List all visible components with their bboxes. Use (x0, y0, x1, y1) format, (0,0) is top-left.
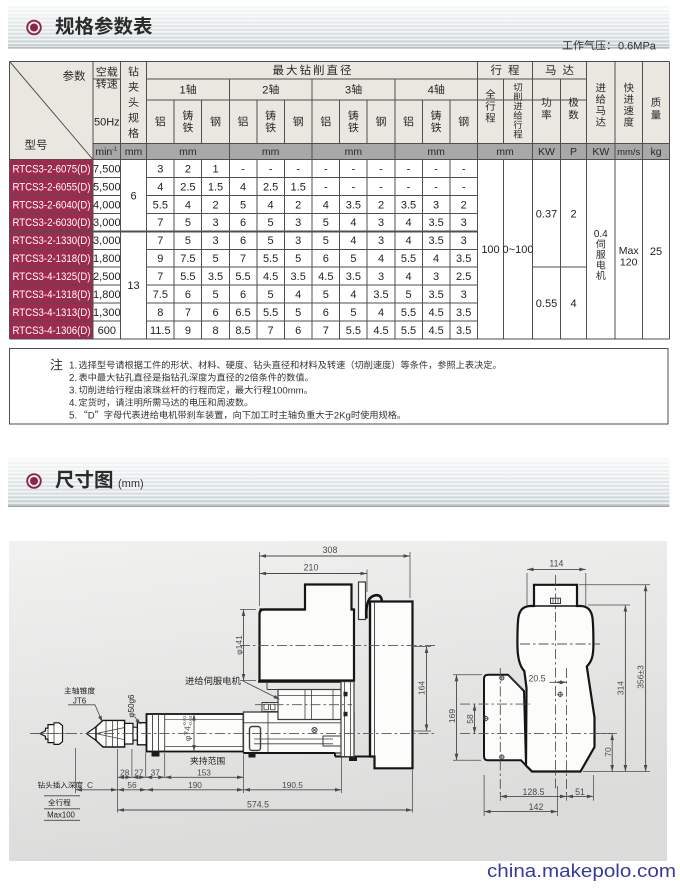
svg-text:5.5: 5.5 (346, 325, 361, 337)
svg-text:4,000: 4,000 (93, 199, 121, 211)
svg-text:Max100: Max100 (47, 811, 75, 820)
svg-text:356±3: 356±3 (636, 665, 646, 689)
svg-text:5: 5 (268, 235, 274, 247)
svg-text:169: 169 (447, 709, 457, 723)
svg-text:mm/s: mm/s (617, 147, 640, 158)
svg-text:51: 51 (575, 787, 585, 797)
svg-text:5: 5 (185, 235, 191, 247)
svg-text:JT6: JT6 (73, 696, 87, 705)
svg-text:8: 8 (157, 307, 163, 319)
svg-text:-: - (352, 181, 356, 193)
svg-text:-: - (379, 181, 383, 193)
svg-text:6: 6 (185, 289, 191, 301)
svg-text:3.5: 3.5 (428, 217, 443, 229)
svg-text:3: 3 (295, 235, 301, 247)
svg-text:8.5: 8.5 (235, 325, 250, 337)
svg-text:13: 13 (127, 280, 139, 292)
svg-text:3.5: 3.5 (456, 307, 471, 319)
svg-text:3.5: 3.5 (428, 235, 443, 247)
svg-text:120: 120 (620, 257, 638, 269)
svg-text:4.5: 4.5 (428, 307, 443, 319)
svg-text:2: 2 (244, 373, 249, 384)
svg-text:153: 153 (197, 768, 211, 778)
svg-text:142: 142 (529, 802, 544, 812)
svg-text:(mm): (mm) (118, 478, 144, 490)
svg-text:4: 4 (378, 307, 384, 319)
svg-text:Max: Max (619, 245, 640, 257)
svg-text:2: 2 (295, 199, 301, 211)
svg-text:RTCS3-4-1318(D): RTCS3-4-1318(D) (13, 289, 91, 301)
svg-text:3: 3 (157, 163, 163, 175)
svg-text:4: 4 (405, 217, 411, 229)
svg-text:RTCS3-4-1325(D): RTCS3-4-1325(D) (13, 271, 91, 283)
svg-text:6: 6 (323, 307, 329, 319)
svg-text:4: 4 (405, 271, 411, 283)
svg-text:37: 37 (151, 768, 161, 778)
svg-text:7: 7 (157, 217, 163, 229)
svg-text:5,500: 5,500 (93, 181, 121, 193)
svg-text:100: 100 (481, 244, 499, 256)
svg-text:1.5: 1.5 (291, 181, 306, 193)
svg-text:mm: mm (427, 146, 445, 158)
svg-text:314: 314 (615, 681, 625, 695)
svg-text:2.5: 2.5 (263, 181, 278, 193)
svg-text:114: 114 (549, 559, 563, 569)
svg-text:3.5: 3.5 (346, 199, 361, 211)
svg-text:5.5: 5.5 (401, 325, 416, 337)
svg-text:9: 9 (157, 253, 163, 265)
svg-text:RTCS3-2-6040(D): RTCS3-2-6040(D) (13, 199, 91, 211)
svg-text:3,000: 3,000 (93, 235, 121, 247)
svg-text:28: 28 (120, 768, 130, 778)
svg-text:0.4: 0.4 (594, 229, 608, 240)
svg-text:5: 5 (323, 289, 329, 301)
svg-text:china.makepolo.com: china.makepolo.com (487, 861, 676, 881)
svg-text:7: 7 (157, 271, 163, 283)
svg-text:3.5: 3.5 (208, 271, 223, 283)
svg-text:574.5: 574.5 (247, 800, 269, 810)
svg-text:4: 4 (350, 235, 356, 247)
svg-text:-: - (269, 163, 273, 175)
svg-text:RTCS3-2-6075(D): RTCS3-2-6075(D) (13, 163, 91, 175)
svg-text:1,800: 1,800 (93, 289, 121, 301)
svg-text:0~100: 0~100 (503, 244, 534, 256)
svg-text:7: 7 (157, 235, 163, 247)
svg-text:5.5: 5.5 (153, 199, 168, 211)
svg-text:190.5: 190.5 (282, 780, 303, 790)
svg-text:5.5: 5.5 (235, 271, 250, 283)
svg-text:4: 4 (295, 289, 301, 301)
svg-text:-: - (462, 181, 466, 193)
svg-text:5: 5 (212, 289, 218, 301)
svg-text:2,500: 2,500 (93, 271, 121, 283)
svg-text:5: 5 (350, 253, 356, 265)
svg-text:308: 308 (323, 545, 338, 555)
svg-text:5: 5 (295, 253, 301, 265)
svg-text:5: 5 (405, 289, 411, 301)
svg-text:5: 5 (268, 289, 274, 301)
svg-text:5: 5 (240, 199, 246, 211)
svg-text:-: - (379, 163, 383, 175)
svg-text:3: 3 (345, 84, 351, 96)
svg-text:3,000: 3,000 (93, 217, 121, 229)
svg-text:2Kg: 2Kg (334, 410, 351, 421)
svg-text:6: 6 (240, 235, 246, 247)
svg-text:5.5: 5.5 (263, 253, 278, 265)
svg-text:KW: KW (538, 146, 555, 158)
svg-text:-1: -1 (112, 146, 118, 153)
svg-text:3.5: 3.5 (456, 253, 471, 265)
svg-text:-: - (407, 181, 411, 193)
svg-text:9: 9 (185, 325, 191, 337)
svg-text:1.: 1. (69, 361, 77, 372)
svg-text:3.5: 3.5 (456, 325, 471, 337)
svg-text:4: 4 (433, 253, 439, 265)
svg-text:6: 6 (130, 190, 136, 202)
svg-text:-: - (407, 163, 411, 175)
svg-text:5: 5 (212, 253, 218, 265)
svg-text:mm: mm (125, 146, 143, 158)
svg-text:-: - (434, 181, 438, 193)
svg-text:5.: 5. (69, 411, 77, 422)
svg-text:φ141: φ141 (234, 635, 244, 655)
svg-text:4: 4 (157, 181, 163, 193)
svg-text:3: 3 (461, 217, 467, 229)
svg-text:6.5: 6.5 (235, 307, 250, 319)
svg-text:4: 4 (323, 199, 329, 211)
svg-text:-: - (462, 163, 466, 175)
svg-text:210: 210 (304, 563, 319, 573)
svg-text:C: C (87, 780, 93, 790)
svg-text:7.5: 7.5 (153, 289, 168, 301)
svg-text:27: 27 (134, 768, 144, 778)
svg-text:7: 7 (240, 253, 246, 265)
svg-text:RTCS3-2-6055(D): RTCS3-2-6055(D) (13, 181, 91, 193)
svg-text:5.5: 5.5 (401, 307, 416, 319)
svg-text:3: 3 (378, 235, 384, 247)
svg-text:2.: 2. (69, 373, 77, 384)
svg-text:2: 2 (262, 84, 268, 96)
svg-text:4: 4 (570, 298, 576, 310)
svg-text:25: 25 (650, 246, 662, 258)
svg-text:3.5: 3.5 (373, 289, 388, 301)
svg-text:20.5: 20.5 (528, 674, 545, 684)
svg-text:mm: mm (345, 146, 363, 158)
svg-text:2: 2 (185, 163, 191, 175)
svg-text:0.55: 0.55 (536, 298, 557, 310)
svg-text:2.5: 2.5 (180, 181, 195, 193)
svg-text:100mm: 100mm (272, 385, 304, 396)
svg-text:mm: mm (262, 146, 280, 158)
svg-text:kg: kg (650, 146, 661, 158)
svg-text:φ50g6: φ50g6 (127, 694, 136, 718)
svg-text:5: 5 (323, 217, 329, 229)
svg-text:4: 4 (240, 181, 246, 193)
svg-text:1,300: 1,300 (93, 307, 121, 319)
svg-text:5.5: 5.5 (180, 271, 195, 283)
svg-text:3.5: 3.5 (401, 199, 416, 211)
svg-text:-: - (296, 163, 300, 175)
svg-text:-: - (324, 181, 328, 193)
svg-text:0.37: 0.37 (536, 208, 557, 220)
svg-text:4: 4 (378, 253, 384, 265)
svg-text:2: 2 (378, 199, 384, 211)
svg-text:-: - (434, 163, 438, 175)
svg-text:1,800: 1,800 (93, 253, 121, 265)
svg-text:mm: mm (179, 146, 197, 158)
svg-text:3: 3 (433, 271, 439, 283)
svg-text:RTCS3-2-1330(D): RTCS3-2-1330(D) (13, 235, 91, 247)
svg-text:5.5: 5.5 (401, 253, 416, 265)
svg-text:5: 5 (323, 235, 329, 247)
svg-text:7,500: 7,500 (93, 163, 121, 175)
svg-text:4: 4 (405, 235, 411, 247)
svg-text:2: 2 (212, 199, 218, 211)
svg-text:128.5: 128.5 (522, 787, 544, 797)
svg-text:5.5: 5.5 (263, 307, 278, 319)
svg-text:8: 8 (212, 325, 218, 337)
svg-text:mm: mm (496, 146, 514, 158)
svg-text:-0.04: -0.04 (188, 715, 194, 726)
svg-text:min: min (95, 146, 112, 158)
svg-text:3: 3 (212, 235, 218, 247)
svg-text:-: - (324, 163, 328, 175)
svg-text:KW: KW (592, 146, 609, 158)
svg-text:3: 3 (378, 217, 384, 229)
svg-text:3: 3 (212, 217, 218, 229)
svg-text:2: 2 (570, 208, 576, 220)
svg-text:3: 3 (378, 271, 384, 283)
svg-text:4: 4 (350, 217, 356, 229)
svg-text:7: 7 (185, 307, 191, 319)
svg-text:5: 5 (268, 217, 274, 229)
svg-text:RTCS3-4-1313(D): RTCS3-4-1313(D) (13, 307, 91, 319)
svg-text:-: - (352, 163, 356, 175)
svg-text:0.6MPa: 0.6MPa (618, 40, 657, 52)
svg-text:3: 3 (433, 199, 439, 211)
svg-text:2.5: 2.5 (456, 271, 471, 283)
svg-text:5: 5 (295, 307, 301, 319)
svg-text:D: D (88, 410, 95, 421)
svg-text:4.5: 4.5 (318, 271, 333, 283)
svg-text:1: 1 (212, 163, 218, 175)
svg-text:164: 164 (417, 681, 427, 695)
svg-text:4: 4 (428, 84, 434, 96)
svg-text:1: 1 (180, 84, 186, 96)
svg-text:6: 6 (212, 307, 218, 319)
svg-text:3.: 3. (69, 386, 77, 397)
svg-text:4: 4 (350, 289, 356, 301)
svg-text:4.5: 4.5 (263, 271, 278, 283)
svg-text:7: 7 (268, 325, 274, 337)
svg-text:RTCS3-4-1306(D): RTCS3-4-1306(D) (13, 325, 91, 337)
svg-text:4: 4 (268, 199, 274, 211)
svg-text:3: 3 (461, 289, 467, 301)
svg-text:2: 2 (461, 199, 467, 211)
svg-text:5: 5 (185, 217, 191, 229)
svg-text:5: 5 (350, 307, 356, 319)
svg-text:1.5: 1.5 (208, 181, 223, 193)
svg-text:4: 4 (185, 199, 191, 211)
svg-text:-: - (241, 163, 245, 175)
svg-text:-0.01: -0.01 (182, 715, 188, 726)
svg-text:3.5: 3.5 (291, 271, 306, 283)
svg-text:4.: 4. (69, 398, 77, 409)
svg-text:RTCS3-2-6030(D): RTCS3-2-6030(D) (13, 217, 91, 229)
svg-text:3.5: 3.5 (428, 289, 443, 301)
svg-text:RTCS3-2-1318(D): RTCS3-2-1318(D) (13, 253, 91, 265)
svg-text:7.5: 7.5 (180, 253, 195, 265)
svg-text:6: 6 (240, 289, 246, 301)
svg-text:4.5: 4.5 (428, 325, 443, 337)
svg-text:6: 6 (295, 325, 301, 337)
svg-text:190: 190 (188, 780, 202, 790)
svg-text:6: 6 (240, 217, 246, 229)
svg-text:3.5: 3.5 (346, 271, 361, 283)
svg-text:58: 58 (465, 714, 475, 724)
svg-text:56: 56 (127, 780, 137, 790)
svg-text:4.5: 4.5 (373, 325, 388, 337)
svg-text:3: 3 (461, 235, 467, 247)
svg-text:50Hz: 50Hz (94, 117, 120, 129)
svg-text:7: 7 (323, 325, 329, 337)
svg-text:11.5: 11.5 (150, 325, 171, 337)
svg-text:P: P (570, 146, 577, 158)
svg-text:70: 70 (603, 747, 613, 757)
svg-text:6: 6 (323, 253, 329, 265)
svg-text:600: 600 (98, 325, 116, 337)
svg-text:3: 3 (295, 217, 301, 229)
